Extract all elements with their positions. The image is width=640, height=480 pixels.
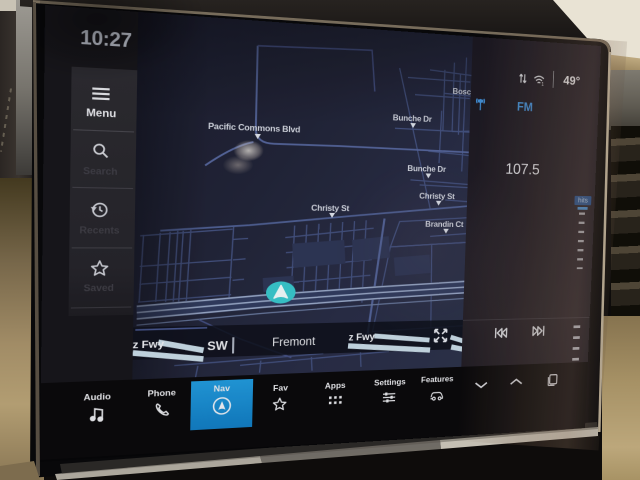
svg-text:1: 1 [541,82,544,86]
